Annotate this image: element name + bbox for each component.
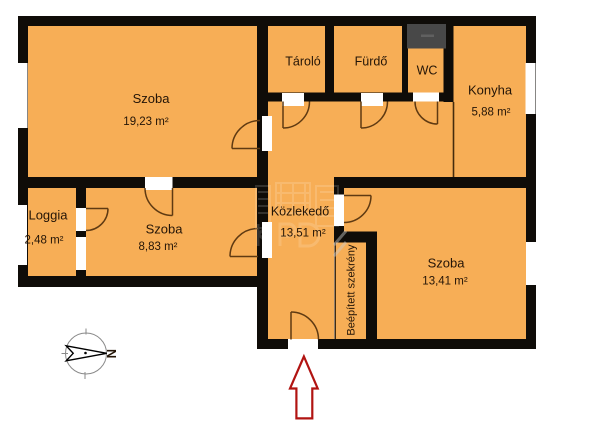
svg-text:N: N	[104, 349, 119, 358]
svg-text:13,41 m²: 13,41 m²	[422, 276, 468, 288]
svg-text:Konyha: Konyha	[468, 83, 513, 98]
svg-text:Közlekedő: Közlekedő	[271, 205, 329, 219]
svg-text:8,83 m²: 8,83 m²	[139, 241, 178, 253]
svg-text:5,88 m²: 5,88 m²	[472, 107, 511, 119]
svg-text:Tároló: Tároló	[285, 55, 320, 69]
svg-text:Loggia: Loggia	[28, 208, 68, 223]
svg-text:13,51 m²: 13,51 m²	[280, 228, 326, 240]
svg-text:Beépített szekrény: Beépített szekrény	[346, 244, 358, 336]
svg-text:Szoba: Szoba	[146, 222, 184, 237]
svg-text:WC: WC	[417, 64, 438, 78]
svg-text:19,23 m²: 19,23 m²	[123, 116, 169, 128]
svg-text:Fürdő: Fürdő	[355, 55, 388, 69]
svg-text:2,48 m²: 2,48 m²	[25, 235, 64, 247]
svg-text:Szoba: Szoba	[428, 256, 466, 271]
svg-text:Szoba: Szoba	[133, 91, 171, 106]
